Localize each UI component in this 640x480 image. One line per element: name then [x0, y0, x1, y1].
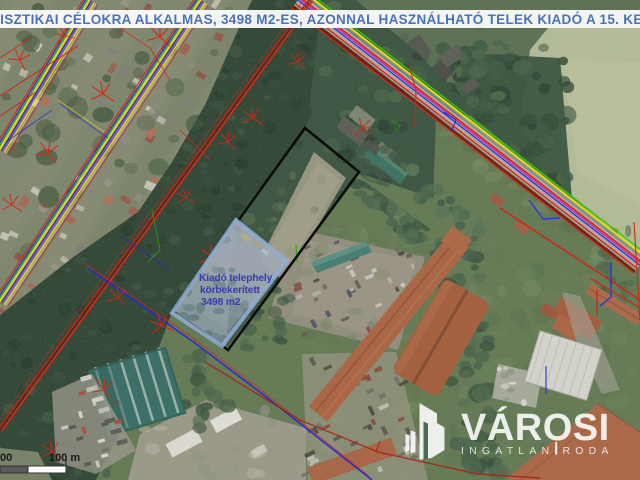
svg-text:VÁROSI: VÁROSI	[461, 405, 610, 449]
svg-text:100 m: 100 m	[49, 452, 80, 464]
svg-text:INGATLANIRODA: INGATLANIRODA	[461, 445, 614, 457]
svg-text:körbekerített: körbekerített	[200, 285, 261, 296]
svg-text:Kiadó telephely: Kiadó telephely	[199, 273, 273, 284]
svg-text:LOGISZTIKAI CÉLOKRA ALKALMAS,: LOGISZTIKAI CÉLOKRA ALKALMAS, 3498 M2-ES…	[0, 12, 640, 27]
svg-text:3498 m2: 3498 m2	[201, 297, 241, 308]
svg-text:00: 00	[0, 452, 12, 464]
